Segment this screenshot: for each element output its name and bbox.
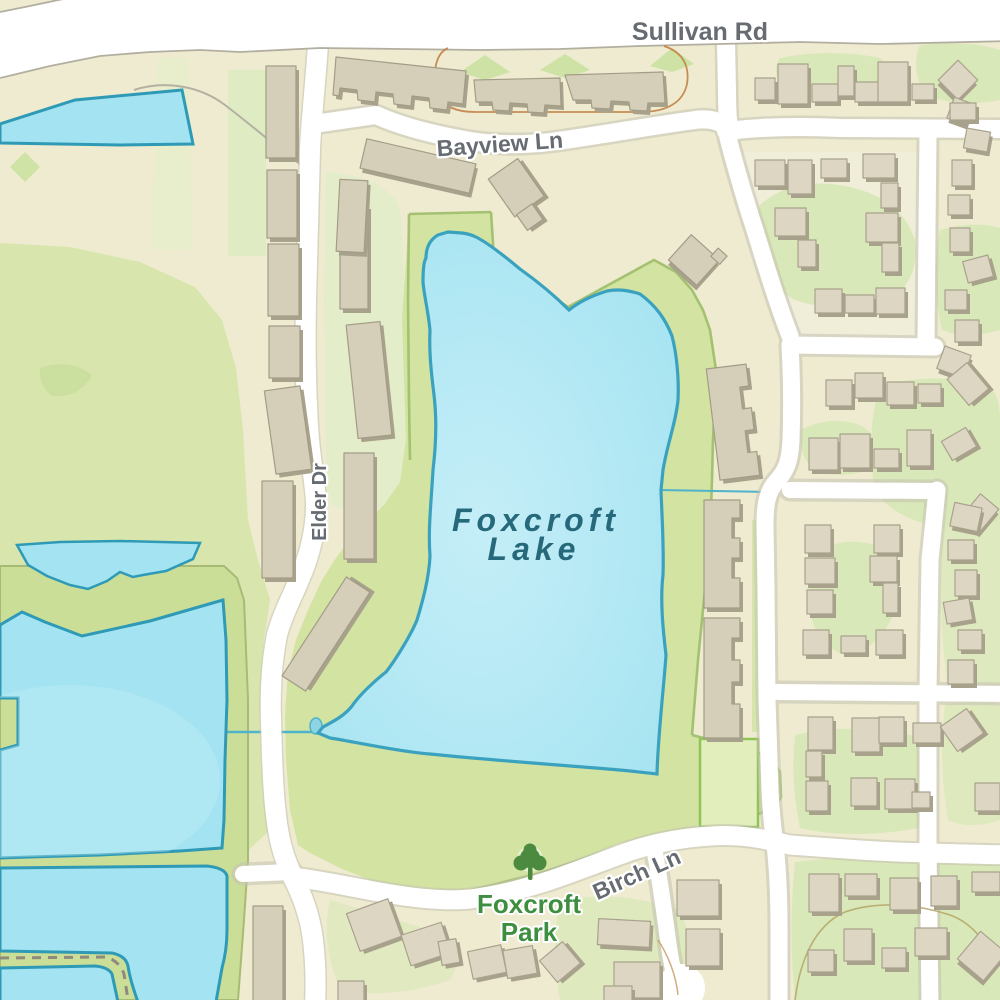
svg-text:Elder Dr: Elder Dr <box>309 463 331 541</box>
svg-text:Park: Park <box>501 917 558 947</box>
svg-text:Lake: Lake <box>488 531 581 567</box>
svg-text:Foxcroft: Foxcroft <box>477 889 581 919</box>
svg-text:Sullivan Rd: Sullivan Rd <box>632 18 768 46</box>
